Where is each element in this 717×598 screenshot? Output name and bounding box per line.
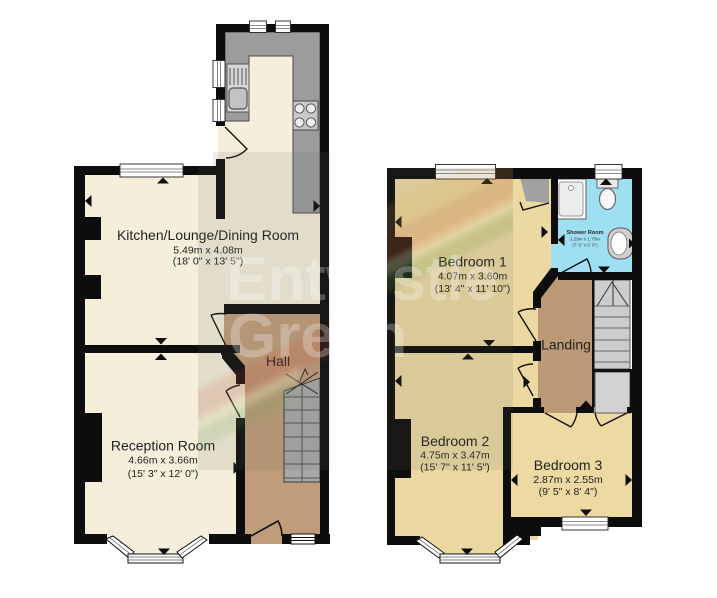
svg-text:(9' 5" x 8' 4"): (9' 5" x 8' 4") [539, 486, 598, 498]
svg-text:2.87m x 2.55m: 2.87m x 2.55m [533, 474, 603, 486]
svg-text:(7' 6" x 5' 9"): (7' 6" x 5' 9") [572, 243, 598, 248]
svg-text:Shower Room: Shower Room [567, 230, 604, 236]
svg-text:2.29m x 1.75m: 2.29m x 1.75m [570, 237, 600, 242]
svg-text:4.66m x 3.66m: 4.66m x 3.66m [128, 455, 198, 467]
svg-text:(15' 3" x 12' 0"): (15' 3" x 12' 0") [128, 468, 198, 480]
svg-text:Landing: Landing [541, 337, 591, 353]
svg-text:Bedroom 3: Bedroom 3 [534, 457, 603, 473]
